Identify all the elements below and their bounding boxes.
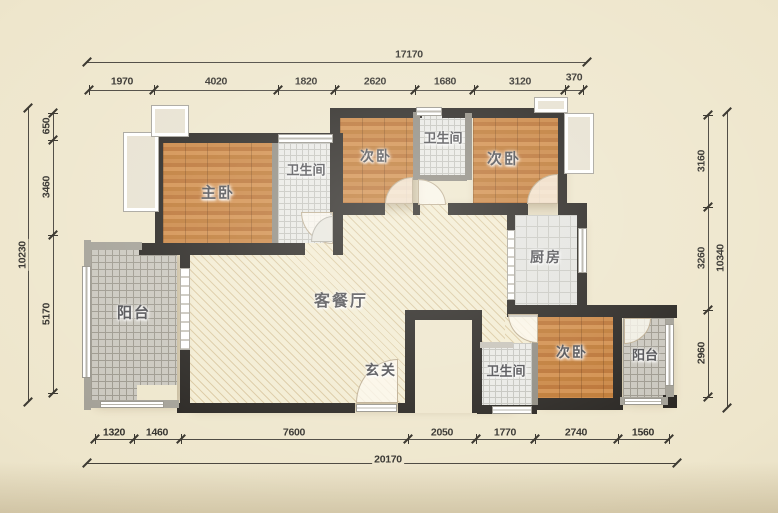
dim-top-seg: 3120 <box>507 76 533 87</box>
master-bay-window <box>124 133 158 211</box>
bathroom-door-sill <box>480 342 513 348</box>
wall <box>533 398 623 410</box>
dim-right-seg: 3260 <box>696 245 707 271</box>
kitchen-sliding-door <box>507 230 515 300</box>
balcony-left-window <box>82 266 91 378</box>
wall <box>405 310 415 413</box>
dim-tick-guide <box>48 235 58 236</box>
room-label-bathroom-top-left: 卫生间 <box>286 160 325 179</box>
entry-door-sill <box>356 404 397 412</box>
wall <box>330 108 422 118</box>
dim-top-seg: 1970 <box>109 76 135 87</box>
wall <box>448 203 528 215</box>
balcony-left-bottom-window <box>100 401 164 408</box>
dim-tick-guide <box>335 85 336 95</box>
dim-tick-guide <box>583 85 584 95</box>
bedroom-right-bay-window <box>565 114 593 173</box>
dim-tick-guide <box>535 434 536 444</box>
dim-right-seg: 3160 <box>696 148 707 174</box>
dim-bottom-total: 20170 <box>372 454 404 465</box>
wall <box>330 203 385 215</box>
living-balcony-sliding-door <box>180 268 190 350</box>
wall <box>177 403 355 413</box>
wall <box>139 243 305 255</box>
wall <box>615 305 677 318</box>
bathroom-top-middle-door-arc <box>418 179 446 205</box>
wall <box>405 310 482 320</box>
wall <box>330 108 340 215</box>
dim-line-right-total <box>727 112 728 408</box>
dim-top-seg: 1820 <box>293 76 319 87</box>
bathroom-top-middle-window <box>416 107 442 116</box>
dim-tick-guide <box>408 434 409 444</box>
dim-tick-guide <box>48 113 58 114</box>
dim-top-seg: 1680 <box>432 76 458 87</box>
room-label-living-dining: 客餐厅 <box>314 287 368 311</box>
dim-tick-guide <box>48 140 58 141</box>
dim-tick-guide <box>95 434 96 444</box>
partition-wall <box>272 143 278 243</box>
room-label-bathroom-top-middle: 卫生间 <box>423 128 462 147</box>
dim-left-seg: 3460 <box>41 174 52 200</box>
dim-line-top-total <box>87 62 587 63</box>
wall <box>398 403 415 413</box>
dim-top-seg: 4020 <box>203 76 229 87</box>
wall <box>472 310 482 413</box>
dim-tick-guide <box>154 85 155 95</box>
dim-bottom-seg: 2050 <box>429 427 455 438</box>
room-label-master-bedroom: 主卧 <box>201 182 235 203</box>
dim-left-seg: 650 <box>41 116 52 137</box>
dim-bottom-seg: 1320 <box>101 427 127 438</box>
dim-tick-guide <box>474 85 475 95</box>
balcony-right-bottom-window <box>624 398 662 405</box>
dim-tick-guide <box>703 397 713 398</box>
room-label-bedroom-bottom-right: 次卧 <box>556 342 588 362</box>
floorplan-canvas: 17170 1970 4020 1820 2620 1680 3120 370 … <box>0 0 778 513</box>
room-label-balcony-left: 阳台 <box>117 302 151 323</box>
master-top-window <box>152 106 188 136</box>
dim-line-left-segments <box>53 113 54 393</box>
dim-tick-guide <box>181 434 182 444</box>
wall <box>613 317 622 402</box>
balcony-wall <box>84 242 142 250</box>
room-label-bedroom-top-middle: 次卧 <box>360 146 392 166</box>
dim-tick-guide <box>703 207 713 208</box>
dim-left-total: 10230 <box>17 239 28 271</box>
room-label-bathroom-bottom: 卫生间 <box>486 361 525 380</box>
dim-line-right-segments <box>708 115 709 397</box>
dim-bottom-seg: 1460 <box>144 427 170 438</box>
dim-tick-guide <box>703 115 713 116</box>
bathroom-top-left-window <box>278 134 333 143</box>
dim-tick-guide <box>618 434 619 444</box>
dim-right-total: 10340 <box>715 242 726 274</box>
partition-wall <box>413 112 420 180</box>
room-label-entry: 玄关 <box>365 360 397 380</box>
dim-tick-guide <box>89 85 90 95</box>
balcony-right-window <box>665 324 674 386</box>
dim-right-seg: 2960 <box>696 340 707 366</box>
dim-top-total: 17170 <box>393 49 425 60</box>
room-label-kitchen: 厨房 <box>530 247 562 267</box>
balcony-left-floor <box>91 248 177 400</box>
dim-tick-guide <box>415 85 416 95</box>
dim-bottom-seg: 1560 <box>630 427 656 438</box>
dim-top-seg: 370 <box>564 72 585 83</box>
bedroom-right-top-window <box>535 98 567 112</box>
bathroom-bottom-window <box>492 406 532 414</box>
partition-wall <box>532 342 538 405</box>
dim-tick-guide <box>134 434 135 444</box>
dim-tick-guide <box>476 434 477 444</box>
dim-tick-guide <box>669 434 670 444</box>
dim-left-seg: 5170 <box>41 301 52 327</box>
dim-bottom-seg: 2740 <box>563 427 589 438</box>
dim-tick-guide <box>565 85 566 95</box>
dim-tick-guide <box>703 310 713 311</box>
entry-notch-void <box>415 320 472 413</box>
room-label-balcony-right: 阳台 <box>632 345 658 364</box>
dim-tick-guide <box>278 85 279 95</box>
dim-top-seg: 2620 <box>362 76 388 87</box>
room-label-bedroom-top-right: 次卧 <box>487 148 521 169</box>
partition-wall <box>465 113 472 180</box>
dim-tick-guide <box>48 393 58 394</box>
dim-bottom-seg: 1770 <box>492 427 518 438</box>
kitchen-window <box>578 228 587 273</box>
dim-bottom-seg: 7600 <box>281 427 307 438</box>
